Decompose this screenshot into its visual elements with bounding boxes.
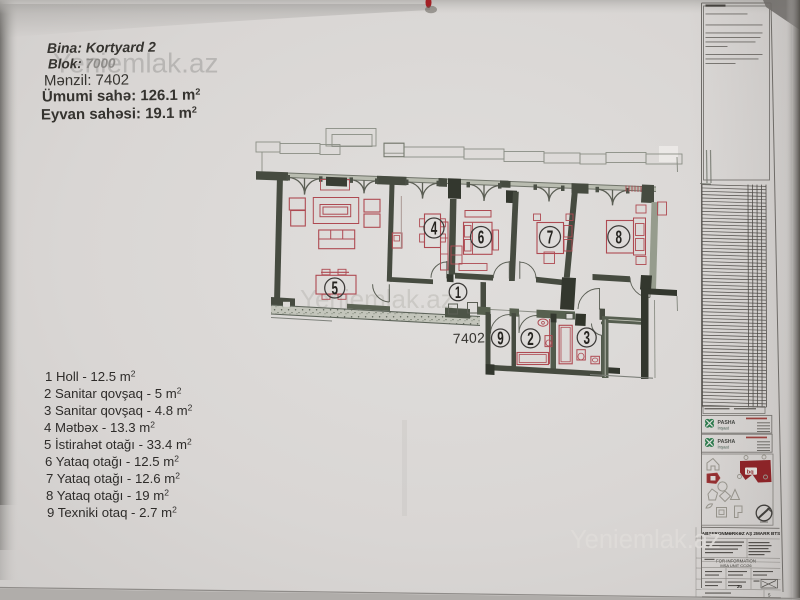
- svg-text:bq: bq: [747, 470, 754, 476]
- svg-text:8: 8: [616, 228, 623, 248]
- svg-text:2: 2: [527, 329, 533, 349]
- svg-text:9 Texniki otaq - 2.7 m2: 9 Texniki otaq - 2.7 m2: [47, 505, 177, 521]
- svg-text:4: 4: [431, 219, 438, 239]
- svg-text:8 Yataq otağı - 19 m2: 8 Yataq otağı - 19 m2: [46, 488, 169, 504]
- svg-text:1: 1: [455, 284, 461, 303]
- svg-text:2 Sanitar qovşaq - 5 m2: 2 Sanitar qovşaq - 5 m2: [44, 386, 182, 402]
- svg-text:Ümumi sahə: 126.1 m2: Ümumi sahə: 126.1 m2: [42, 87, 201, 106]
- svg-text:6: 6: [478, 228, 485, 248]
- svg-text:MSA UNIT CC/26: MSA UNIT CC/26: [720, 563, 752, 568]
- svg-text:4 Mətbəx - 13.3 m2: 4 Mətbəx - 13.3 m2: [44, 420, 155, 436]
- svg-text:3: 3: [583, 329, 590, 349]
- svg-text:5 İstirahət otağı - 33.4 m2: 5 İstirahət otağı - 33.4 m2: [44, 437, 192, 453]
- svg-text:İnşaat: İnşaat: [718, 445, 730, 450]
- svg-text:5: 5: [331, 279, 338, 299]
- svg-text:3 Sanitar qovşaq - 4.8 m2: 3 Sanitar qovşaq - 4.8 m2: [44, 403, 193, 419]
- svg-text:Yeniemlak.az: Yeniemlak.az: [570, 526, 721, 554]
- svg-text:Blok: 7000: Blok: 7000: [48, 56, 116, 72]
- svg-text:1 Holl - 12.5 m2: 1 Holl - 12.5 m2: [45, 369, 136, 385]
- svg-text:7 Yataq otağı - 12.6 m2: 7 Yataq otağı - 12.6 m2: [46, 471, 180, 487]
- svg-text:20: 20: [737, 584, 743, 589]
- svg-text:7: 7: [547, 228, 553, 248]
- svg-text:Eyvan sahəsi: 19.1 m2: Eyvan sahəsi: 19.1 m2: [41, 105, 197, 124]
- svg-text:9: 9: [497, 329, 504, 349]
- svg-text:6 Yataq otağı - 12.5 m2: 6 Yataq otağı - 12.5 m2: [45, 454, 179, 470]
- svg-text:Bina: Kortyard 2: Bina: Kortyard 2: [47, 39, 156, 56]
- svg-text:İnşaat: İnşaat: [718, 425, 730, 430]
- svg-text:7402: 7402: [453, 329, 486, 346]
